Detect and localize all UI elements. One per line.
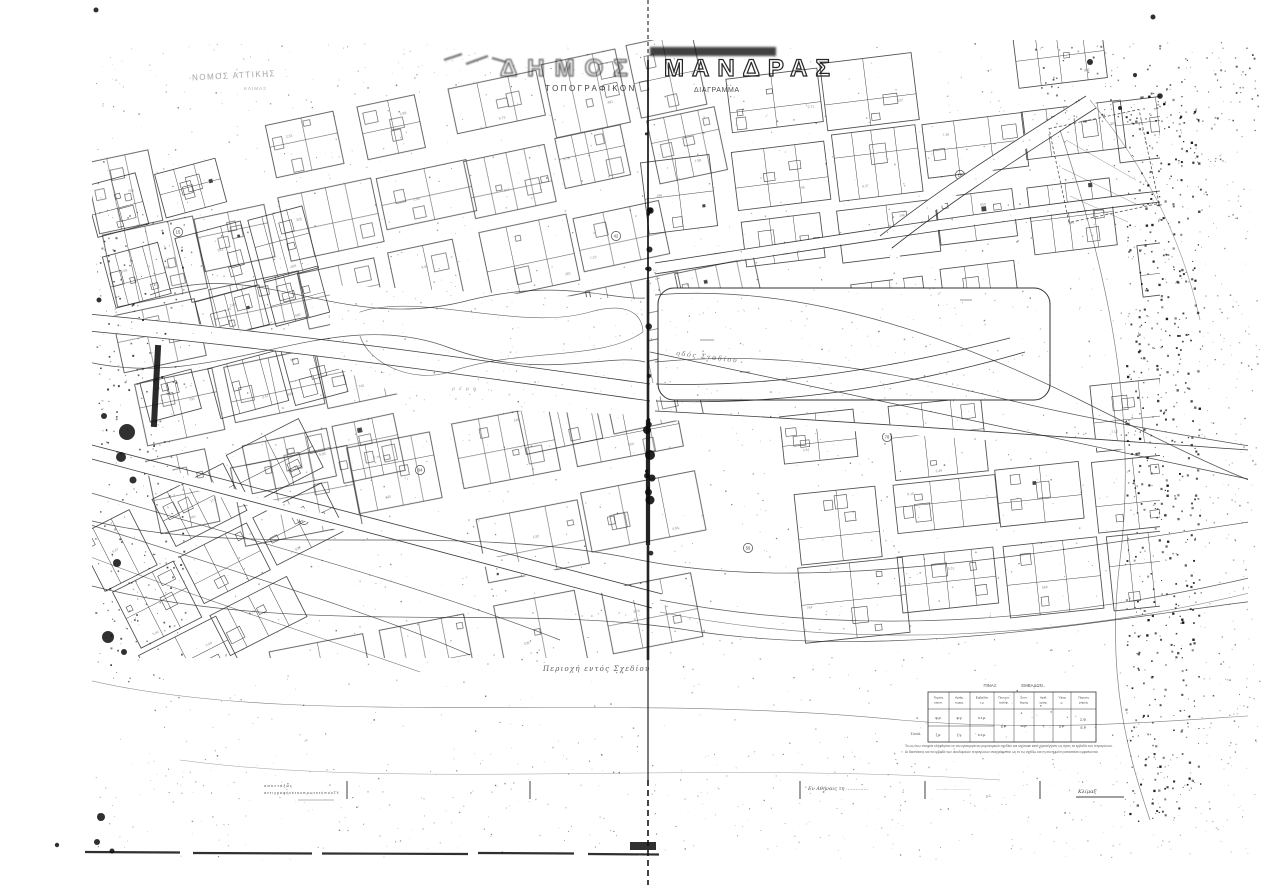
svg-text:7.75: 7.75 [373,455,380,460]
svg-text:540: 540 [190,515,196,520]
svg-text:281: 281 [565,271,571,276]
svg-text:9.73: 9.73 [498,115,505,120]
svg-text:9.10: 9.10 [907,492,914,497]
svg-text:56: 56 [746,546,751,551]
table-cell-text: Παρατη [1078,696,1089,700]
svg-text:3.47: 3.47 [262,394,270,400]
svg-text:700: 700 [188,397,194,402]
table-cell-text: Αι διαστάσεις και τα εμβαδά των οικοδομι… [905,750,1099,754]
district-label: ΝΟΜΟΣ ΑΤΤΙΚΗΣ [192,69,276,82]
svg-text:7.38: 7.38 [942,132,949,137]
table-cell-text: ΠΙΝΑΞ [983,683,996,688]
table-cell-text: Εμβαδόν [976,696,989,700]
svg-text:64: 64 [418,468,423,473]
svg-text:530: 530 [294,545,301,551]
table-cell-text: ω.ρ. [1021,724,1028,728]
table-cell-text: Αριθ. [1040,696,1047,700]
svg-text:682: 682 [295,312,302,317]
table-cell-text: Ύψος [1058,696,1067,700]
map-title-left: ΔΗΜΟΣ [500,55,638,82]
map-subtitle-left: ΤΟΠΟΓΡΑΦΙΚΟΝ [545,84,637,93]
svg-text:42: 42 [614,234,619,239]
svg-text:5.31: 5.31 [948,566,955,571]
table-cell-text: Αριθμ. [955,696,964,700]
margin-text: Κλίμαξ [1077,788,1096,795]
svg-text:324: 324 [628,442,634,447]
table-cell-text: δομής [1020,701,1029,705]
table-cell-text: οικοπ. [934,701,943,705]
svg-text:869: 869 [290,264,297,269]
table-cell-text: τεμαχ. [955,701,964,705]
table-cell-text: Τα ως άνω στοιχεία ελήφθησαν εκ του εγκε… [905,744,1113,748]
district-sublabel: ΚΛΙΜΑΞ [244,86,267,91]
margin-text: χ.λ. [986,794,992,798]
table-cell-text: τ.μ. [980,701,985,705]
svg-text:341: 341 [289,357,296,362]
svg-text:6.67: 6.67 [112,547,120,554]
table-cell-text: φ.γ. [957,716,963,720]
map-canvas: 7032.232.859.734812845413251.555743.787.… [0,0,1261,885]
svg-text:5.71: 5.71 [807,104,814,109]
table-cell-text: Τομεύς [934,696,944,700]
table-cell-text: Ποσοστ. [998,696,1010,700]
table-cell-text: ο.τ.μ. [978,716,986,720]
svg-text:15: 15 [176,230,181,235]
svg-text:541: 541 [217,247,223,252]
svg-text:440: 440 [385,495,391,500]
table-cell-text: κ.τ.μ. [978,733,986,737]
svg-text:764: 764 [807,605,813,610]
svg-text:2.40: 2.40 [205,641,213,648]
svg-text:3.49: 3.49 [935,469,942,474]
svg-text:4.64: 4.64 [672,526,679,531]
svg-text:650: 650 [980,202,986,207]
margin-text: α ν τ ι γ ρ α φ ή ε κ τ ο υ π ρ ω τ ο τ … [264,791,339,795]
svg-text:7.58: 7.58 [694,158,701,163]
svg-text:522: 522 [897,98,903,103]
scanned-topographic-map: 7032.232.859.734812845413251.555743.787.… [0,0,1261,885]
svg-text:186: 186 [656,193,662,198]
margin-text: ............................... [936,786,970,791]
table-cell-text: φ.ρ. [935,716,941,720]
svg-text:5.42: 5.42 [152,630,160,637]
table-cell-text: μ. [1061,701,1064,705]
plaza-label: ρέμα [451,385,480,392]
table-cell-text: ζ.ρ. [936,733,942,737]
svg-text:740: 740 [358,384,364,389]
svg-text:149: 149 [513,418,519,423]
table-cell-text: ΕΜΒΑΔΩΝ [1021,683,1042,688]
svg-text:2.23: 2.23 [285,134,292,139]
table-cell-text: ζ.γ. [957,733,962,737]
svg-text:325: 325 [296,217,302,222]
svg-text:9.27: 9.27 [862,184,869,189]
svg-text:574: 574 [504,187,510,192]
table-cell-text: ς [1043,724,1045,728]
map-title-right: ΜΑΝΔΡΑΣ [664,55,838,82]
margin-text: Εν Αθήναις τη .............. [807,785,869,792]
table-cell-text: Σύνολ. [911,732,922,736]
svg-text:745: 745 [799,185,805,190]
table-cell-text: χ.μ. [1059,724,1065,728]
svg-text:5.69: 5.69 [224,307,232,313]
svg-text:2.85: 2.85 [399,111,406,116]
map-subtitle-right: ΔΙΑΓΡΑΜΜΑ [694,87,740,94]
table-cell-text: χ.φ. [1001,724,1007,728]
zone-note-label: Περιοχή εντός Σχεδίου [542,664,650,673]
svg-text:1.55: 1.55 [413,197,420,202]
svg-text:7.23: 7.23 [590,255,597,260]
table-cell-text: Σ.Φ. [1080,718,1087,722]
table-cell-text: Συντ. [1020,696,1027,700]
svg-text:3.76: 3.76 [633,609,640,614]
table-cell-text: ρήσεις [1079,701,1088,705]
svg-text:703: 703 [128,188,134,193]
svg-text:105: 105 [524,641,530,646]
svg-text:1.82: 1.82 [532,534,539,539]
svg-text:7.12: 7.12 [1111,430,1118,435]
svg-text:78: 78 [885,435,890,440]
svg-text:481: 481 [607,100,613,105]
svg-text:566: 566 [1042,585,1048,590]
svg-text:5.69: 5.69 [319,452,326,457]
svg-text:3.34: 3.34 [802,448,809,453]
svg-text:3.78: 3.78 [563,156,570,161]
table-cell-text: Ε.Ρ. [1081,726,1087,730]
svg-text:8.68: 8.68 [120,268,128,274]
table-cell-text: ορόφ. [1039,701,1047,705]
table-cell-text: καλύψ. [999,701,1009,705]
